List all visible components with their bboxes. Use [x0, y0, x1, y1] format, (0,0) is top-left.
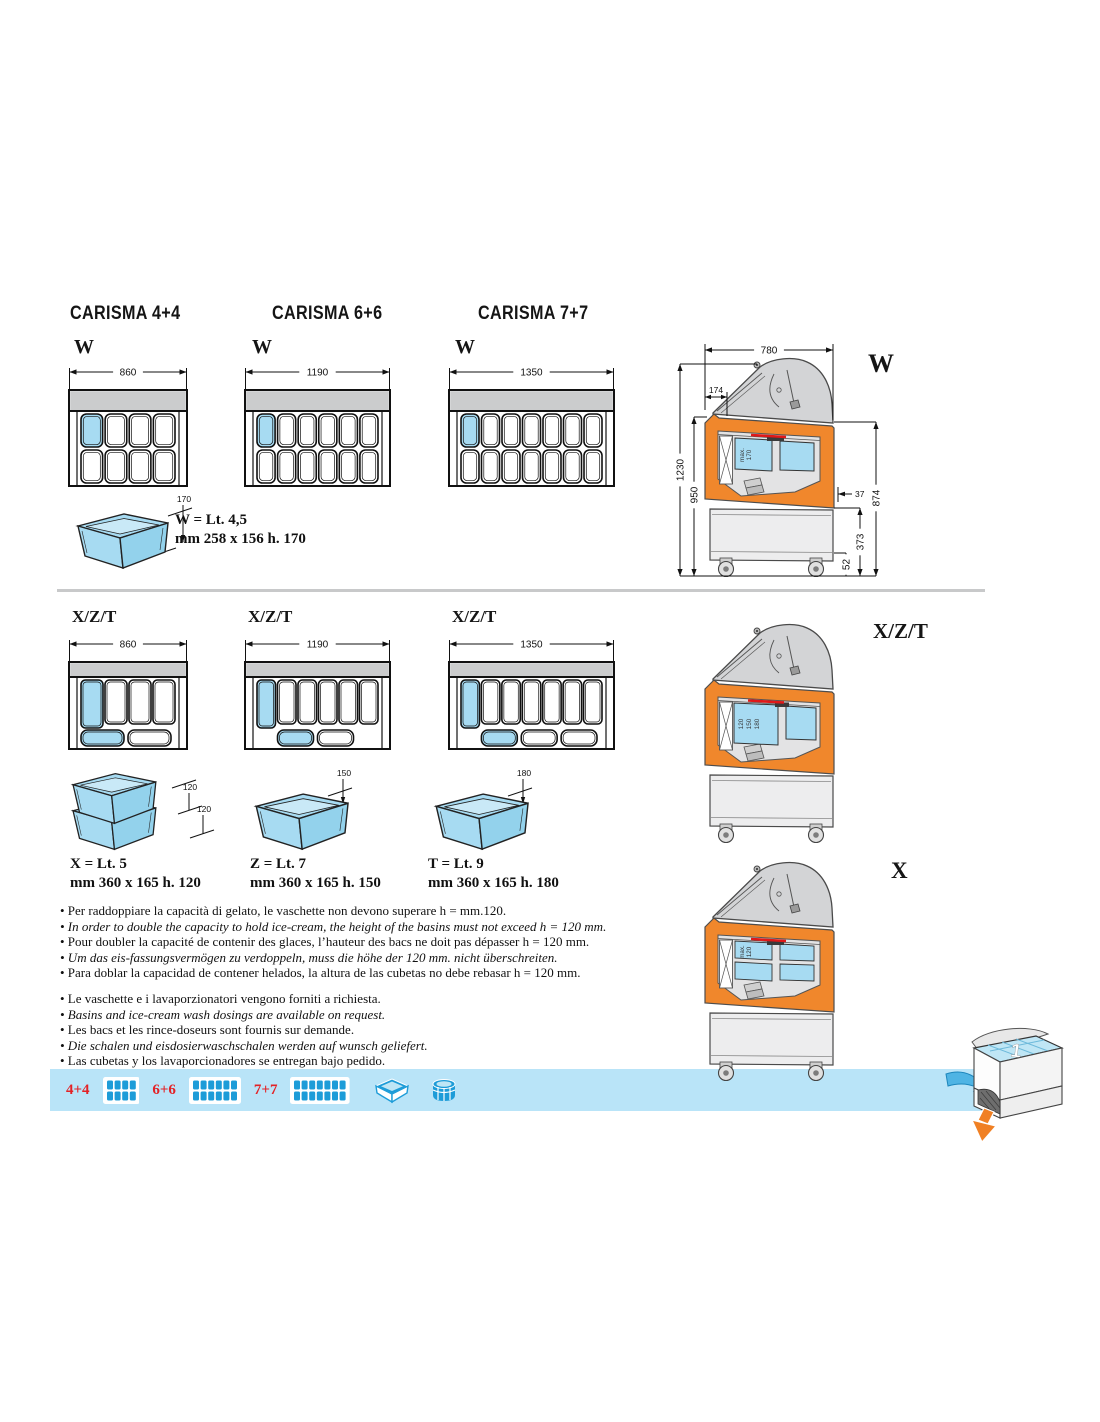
- basin-spec-z: Z = Lt. 7 mm 360 x 165 h. 150: [250, 855, 381, 893]
- basin-spec-t-line1: T = Lt. 9: [428, 855, 559, 874]
- svg-text:150: 150: [746, 718, 753, 729]
- basin-spec-x-line2: mm 360 x 165 h. 120: [70, 874, 201, 893]
- basin-spec-t: T = Lt. 9 mm 360 x 165 h. 180: [428, 855, 559, 893]
- basin-spec-x-line1: X = Lt. 5: [70, 855, 201, 874]
- sideview-x: max. 120 X: [648, 834, 983, 1089]
- model-title-6-6: CARISMA 6+6: [272, 303, 382, 325]
- note-line: • In order to double the capacity to hol…: [60, 919, 606, 935]
- svg-text:373: 373: [856, 533, 867, 550]
- basin-spec-w-line1: W = Lt. 4,5: [175, 511, 306, 530]
- variant-label-w-1: W: [74, 336, 94, 359]
- svg-text:max.: max.: [739, 945, 746, 959]
- note-line: • Pour doubler la capacité de contenir d…: [60, 934, 606, 950]
- svg-text:860: 860: [120, 368, 137, 379]
- svg-text:170: 170: [746, 449, 753, 460]
- svg-text:1190: 1190: [307, 640, 329, 651]
- svg-text:120: 120: [738, 718, 745, 729]
- variant-label-xzt-3: X/Z/T: [452, 607, 496, 627]
- topview-w-6-6: 1190: [244, 364, 391, 488]
- basin-iso-x: 120 120: [58, 766, 228, 862]
- variant-label-w-2: W: [252, 336, 272, 359]
- svg-text:174: 174: [709, 385, 723, 395]
- variant-label-xzt-2: X/Z/T: [248, 607, 292, 627]
- variant-label-xzt-1: X/Z/T: [72, 607, 116, 627]
- topview-xzt-7-7: 1350: [448, 636, 615, 754]
- legend-label-7-7: 7+7: [254, 1082, 278, 1099]
- grid-icon-4-4: [103, 1077, 140, 1104]
- svg-text:150: 150: [337, 768, 351, 778]
- grid-icon-6-6: [189, 1077, 241, 1104]
- topview-xzt-6-6: 1190: [244, 636, 391, 754]
- legend-label-6-6: 6+6: [152, 1082, 176, 1099]
- model-title-4-4: CARISMA 4+4: [70, 303, 180, 325]
- svg-text:1230: 1230: [676, 458, 687, 481]
- section-divider: [57, 589, 985, 592]
- svg-text:120: 120: [746, 946, 753, 957]
- note-line: • Les bacs et les rince-doseurs sont fou…: [60, 1022, 606, 1038]
- topview-w-7-7: 1350: [448, 364, 615, 488]
- svg-text:170: 170: [177, 494, 191, 504]
- note-line: • Para doblar la capacidad de contener h…: [60, 965, 606, 981]
- basin-spec-w-line2: mm 258 x 156 h. 170: [175, 530, 306, 549]
- svg-text:37: 37: [855, 489, 865, 499]
- svg-text:X: X: [891, 858, 908, 883]
- svg-text:1350: 1350: [520, 368, 543, 379]
- variant-label-w-3: W: [455, 336, 475, 359]
- basin-spec-x: X = Lt. 5 mm 360 x 165 h. 120: [70, 855, 201, 893]
- svg-text:X/Z/T: X/Z/T: [873, 619, 928, 643]
- topview-xzt-4-4: 860: [68, 636, 188, 754]
- basin-spec-z-line2: mm 360 x 165 h. 150: [250, 874, 381, 893]
- basin-spec-z-line1: Z = Lt. 7: [250, 855, 381, 874]
- note-line: • Le vaschette e i lavaporzionatori veng…: [60, 991, 606, 1007]
- svg-text:120: 120: [197, 804, 211, 814]
- sideview-w: max. 170 W 780 174 1230: [648, 330, 983, 585]
- model-title-7-7: CARISMA 7+7: [478, 303, 588, 325]
- basin-icon: [373, 1077, 411, 1104]
- svg-text:1350: 1350: [520, 640, 543, 651]
- svg-text:W: W: [868, 349, 894, 378]
- svg-text:780: 780: [761, 346, 778, 357]
- svg-text:1190: 1190: [307, 368, 329, 379]
- note-line: • Las cubetas y los lavaporcionadores se…: [60, 1053, 606, 1069]
- basin-spec-t-line2: mm 360 x 165 h. 180: [428, 874, 559, 893]
- svg-text:950: 950: [690, 486, 701, 503]
- multilingual-notes: • Per raddoppiare la capacità di gelato,…: [60, 903, 606, 1069]
- note-line: • Per raddoppiare la capacità di gelato,…: [60, 903, 606, 919]
- note-line: • Die schalen und eisdosierwaschschalen …: [60, 1038, 606, 1054]
- svg-text:860: 860: [120, 640, 137, 651]
- note-line: • Basins and ice-cream wash dosings are …: [60, 1007, 606, 1023]
- svg-text:52: 52: [842, 559, 853, 571]
- basin-iso-t: 180: [420, 766, 570, 862]
- topview-w-4-4: 860: [68, 364, 188, 488]
- grid-icon-7-7: [290, 1077, 350, 1104]
- sideview-xzt: 120 150 180 X/Z/T: [648, 596, 983, 851]
- svg-text:874: 874: [872, 489, 883, 506]
- corner-freezer-illustration: 1: [944, 1026, 1084, 1146]
- svg-text:180: 180: [517, 768, 531, 778]
- tub-icon: [430, 1076, 458, 1104]
- basin-iso-z: 150: [240, 766, 390, 862]
- datasheet-page: CARISMA 4+4 CARISMA 6+6 CARISMA 7+7 W W …: [0, 0, 1100, 1422]
- svg-text:max.: max.: [739, 448, 746, 462]
- svg-text:180: 180: [754, 718, 761, 729]
- note-line: • Um das eis-fassungsvermögen zu verdopp…: [60, 950, 606, 966]
- basin-spec-w: W = Lt. 4,5 mm 258 x 156 h. 170: [175, 511, 306, 549]
- legend-label-4-4: 4+4: [66, 1082, 90, 1099]
